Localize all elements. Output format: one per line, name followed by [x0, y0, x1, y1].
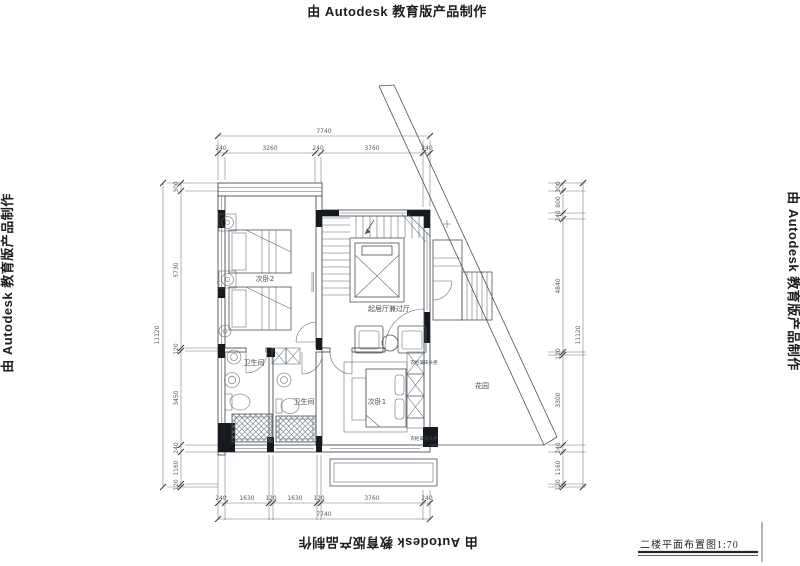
dim-right-3: 4840: [555, 278, 562, 293]
dim-right-6: 240: [555, 442, 562, 454]
dim-bot-2: 120: [265, 495, 277, 502]
dim-top-overall: 7740: [316, 128, 331, 135]
dim-bottom-overall: 7740: [316, 511, 331, 518]
dim-left-5: 1160: [173, 460, 180, 475]
dim-top-2: 240: [312, 145, 324, 152]
dim-right-0: 300: [555, 181, 562, 193]
dim-top-3: 3760: [364, 145, 379, 152]
dim-bot-5: 3760: [364, 495, 379, 502]
floorplan-drawing: 由 Autodesk 教育版产品制作 由 Autodesk 教育版产品制作 由 …: [0, 0, 800, 566]
dim-left-1: 5730: [173, 262, 180, 277]
label-garden: 花园: [475, 381, 489, 390]
dim-right-7: 1160: [555, 460, 562, 475]
dim-right-1: 800: [555, 196, 562, 208]
title-block: 二楼平面布置图1:70: [638, 522, 762, 562]
dim-top-1: 3260: [262, 145, 277, 152]
drawing-title: 二楼平面布置图1:70: [640, 538, 739, 551]
watermark-bottom: 由 Autodesk 教育版产品制作: [298, 535, 477, 550]
watermark-right: 由 Autodesk 教育版产品制作: [786, 191, 800, 370]
label-wardrobe-top: 衣柜兼床头柜: [410, 359, 438, 366]
furniture-living: [355, 326, 426, 353]
dim-top-0: 240: [215, 145, 227, 152]
stair-core: [312, 214, 430, 302]
cad-export-page: 由 Autodesk 教育版产品制作 由 Autodesk 教育版产品制作 由 …: [0, 0, 800, 566]
dim-right-overall: 11120: [575, 325, 582, 344]
dim-left-4: 240: [173, 442, 180, 454]
dim-bot-3: 1630: [287, 495, 302, 502]
dim-bot-6: 240: [421, 495, 433, 502]
bathroom-right: [272, 348, 316, 442]
label-bedroom2: 次卧2: [256, 274, 274, 283]
watermark-left: 由 Autodesk 教育版产品制作: [0, 193, 15, 372]
dim-right-8: 120: [555, 479, 562, 491]
watermarks: 由 Autodesk 教育版产品制作 由 Autodesk 教育版产品制作 由 …: [0, 4, 800, 550]
dim-right-5: 3300: [555, 392, 562, 407]
label-bedroom1: 次卧1: [368, 397, 386, 406]
dim-left-overall: 11120: [154, 325, 161, 344]
exterior-stair: [433, 220, 492, 320]
label-bath-left: 卫生间: [244, 358, 265, 367]
dim-left-0: 300: [173, 181, 180, 193]
dim-left-3: 3450: [173, 390, 180, 405]
dim-bot-0: 240: [215, 495, 227, 502]
dim-right-4: 120: [555, 348, 562, 360]
dim-bot-4: 120: [313, 495, 325, 502]
label-bath-right: 卫生间: [294, 397, 315, 406]
dim-left-6: 120: [173, 479, 180, 491]
dim-right-2: 240: [555, 210, 562, 222]
label-wardrobe-bottom: 衣柜兼床头柜: [410, 435, 438, 442]
dim-bot-1: 1630: [239, 495, 254, 502]
dim-left-2: 120: [173, 343, 180, 355]
label-living-hall: 起居厅兼过厅: [368, 304, 410, 313]
watermark-top: 由 Autodesk 教育版产品制作: [307, 4, 486, 19]
